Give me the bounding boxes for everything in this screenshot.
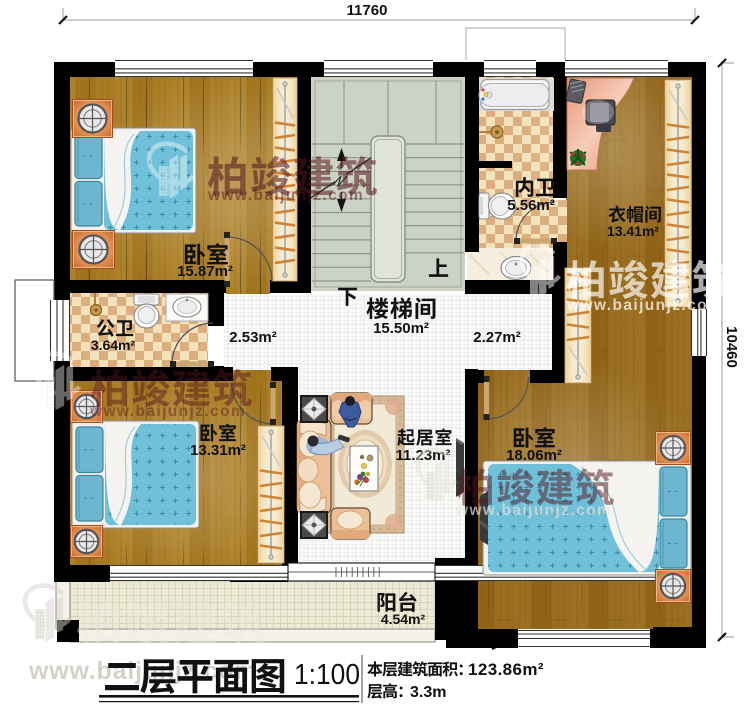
- svg-text:2.53m²: 2.53m²: [229, 329, 277, 346]
- svg-text:www.baijunjz.com: www.baijunjz.com: [455, 502, 612, 519]
- svg-text:3.3m: 3.3m: [410, 684, 446, 701]
- svg-text:15.87m²: 15.87m²: [177, 263, 233, 280]
- svg-text:11760: 11760: [347, 2, 388, 19]
- svg-text:www.baijunjz.com: www.baijunjz.com: [566, 297, 723, 314]
- svg-text:13.41m²: 13.41m²: [607, 223, 659, 239]
- svg-text:15.50m²: 15.50m²: [373, 320, 429, 337]
- svg-text:5.56m²: 5.56m²: [507, 197, 555, 214]
- svg-text:123.86m²: 123.86m²: [468, 660, 544, 679]
- svg-text:18.06m²: 18.06m²: [506, 447, 562, 464]
- svg-text:10460: 10460: [723, 326, 740, 368]
- svg-text:3.64m²: 3.64m²: [91, 337, 136, 353]
- svg-text:13.31m²: 13.31m²: [190, 442, 246, 459]
- svg-text:4.54m²: 4.54m²: [381, 611, 426, 627]
- svg-text:1:100: 1:100: [294, 659, 360, 691]
- svg-text:www.baijunjz.com: www.baijunjz.com: [207, 187, 364, 204]
- svg-text:2.27m²: 2.27m²: [473, 329, 521, 346]
- svg-text:www.baijunjz.com: www.baijunjz.com: [89, 403, 246, 420]
